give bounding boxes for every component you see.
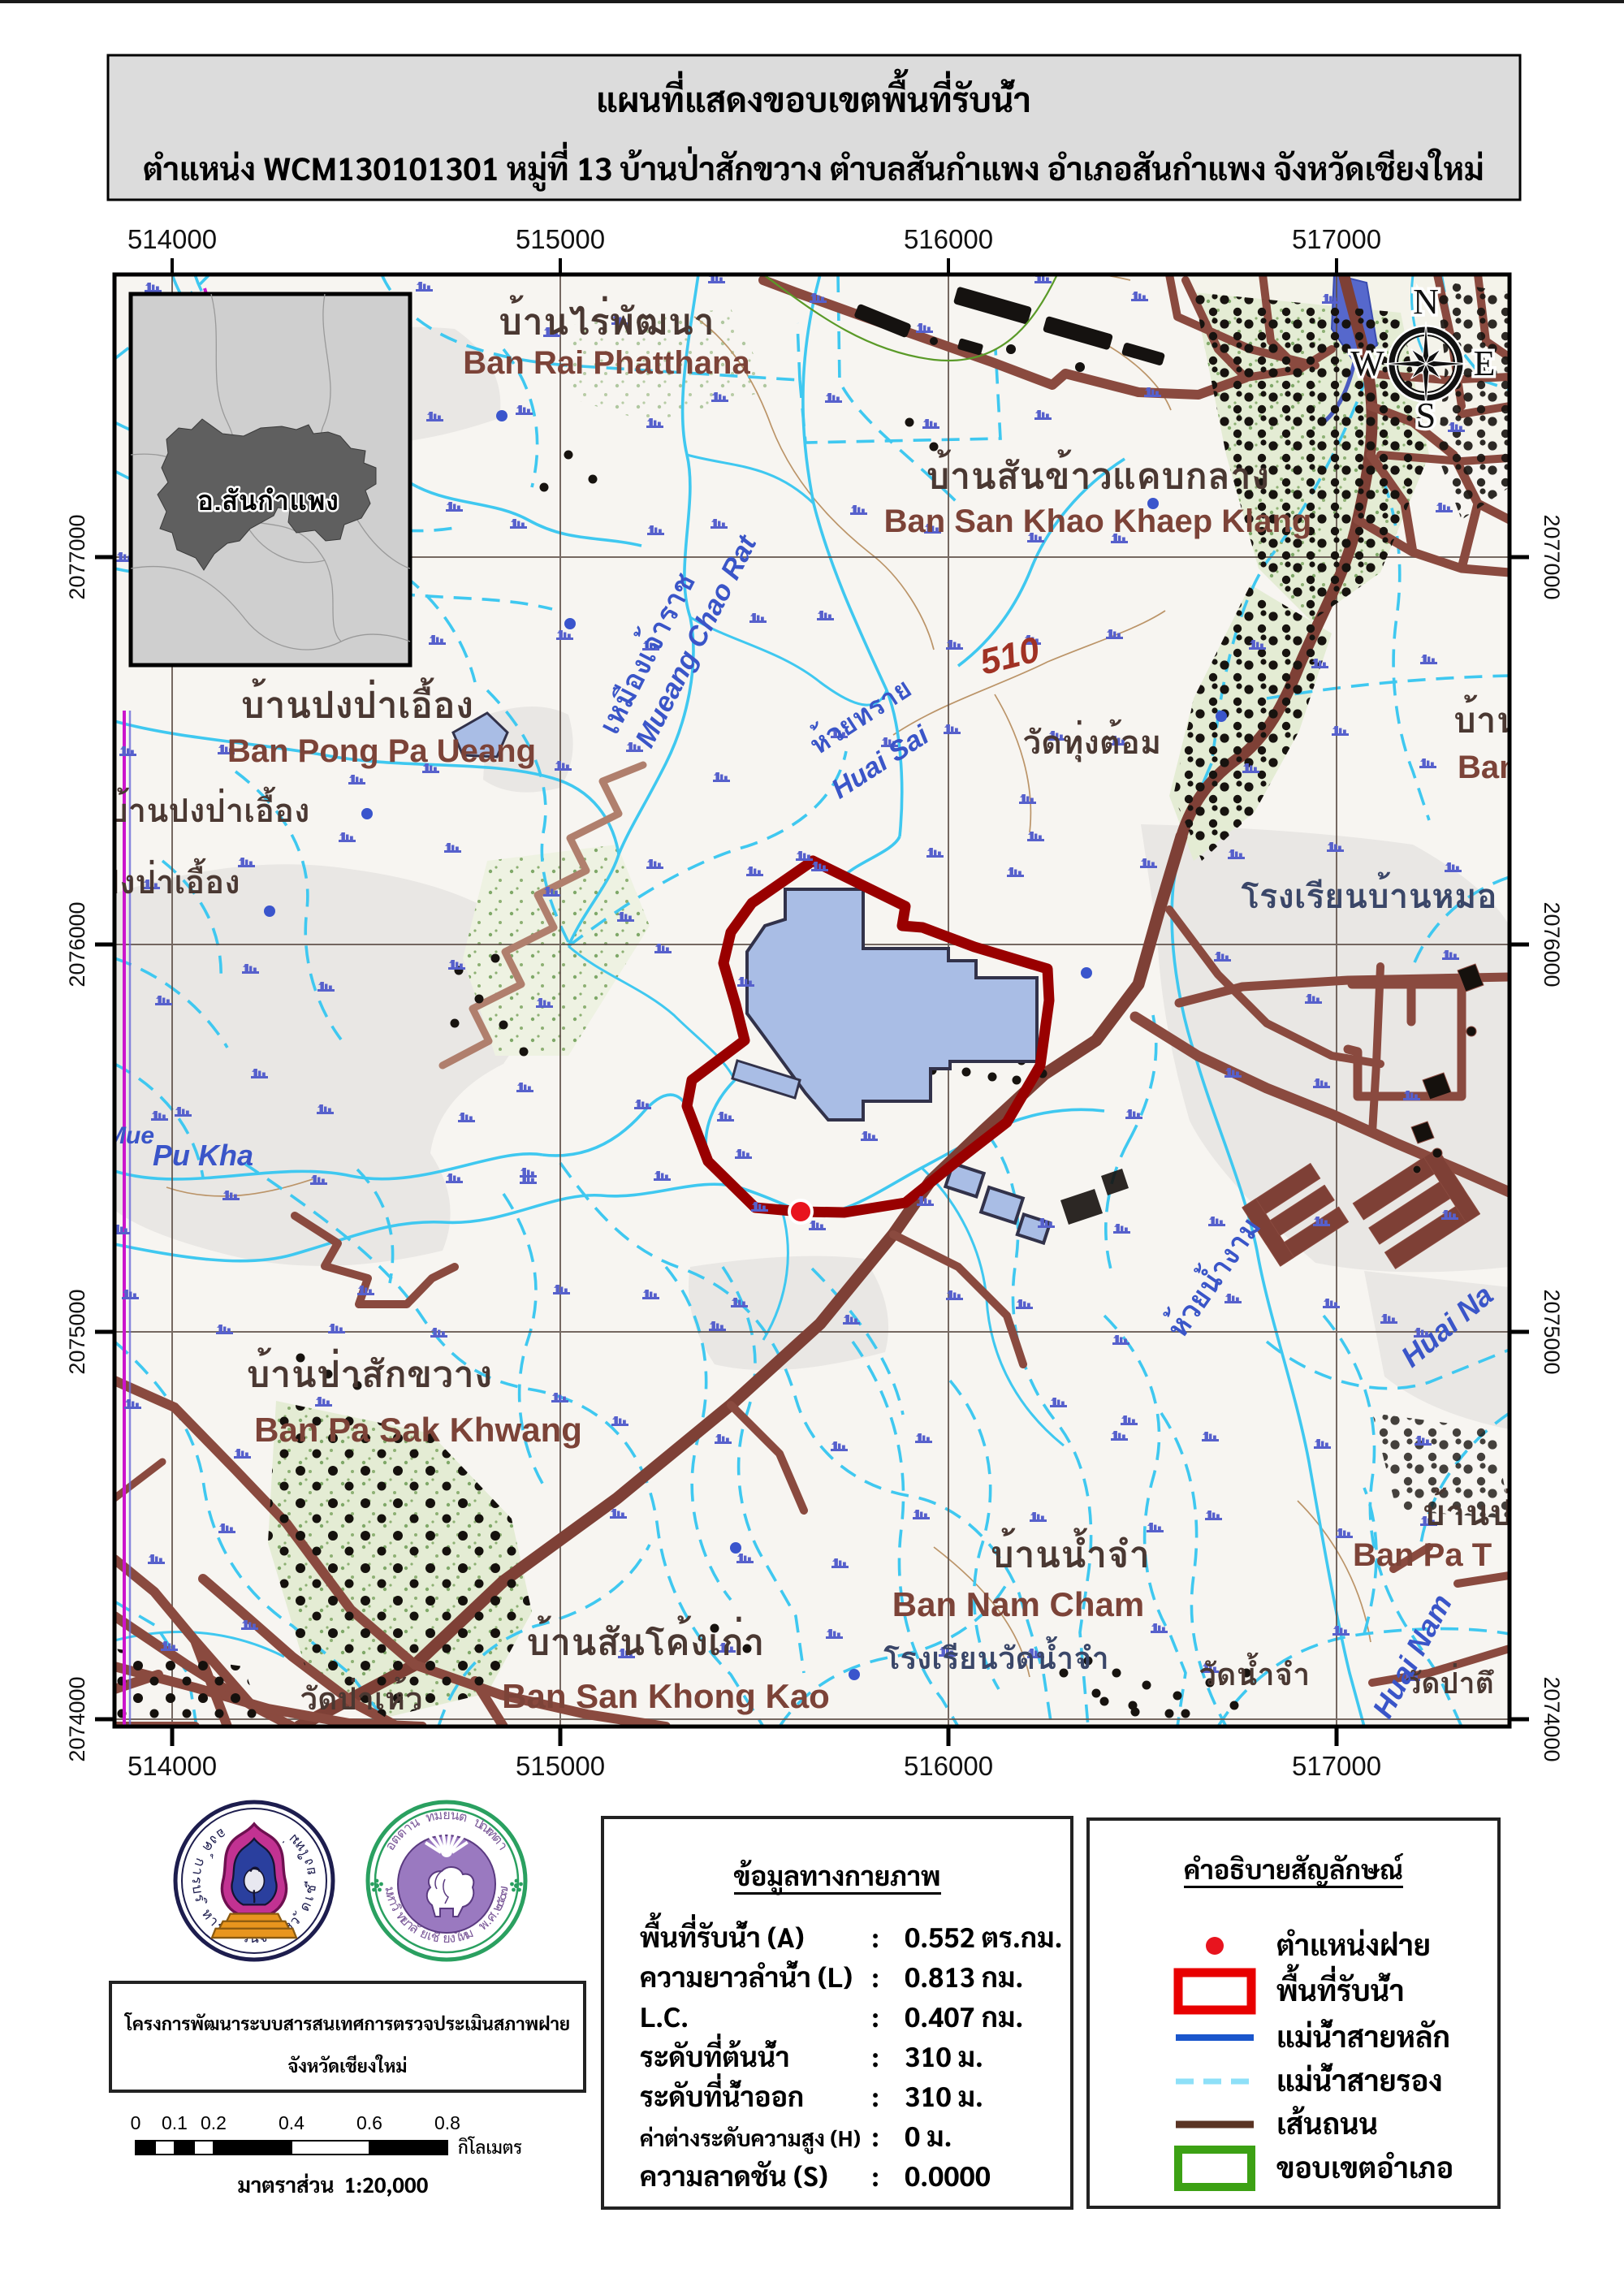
svg-text:0.1: 0.1: [162, 2112, 188, 2133]
svg-text:W: W: [1350, 344, 1384, 383]
svg-text:N: N: [1413, 282, 1439, 322]
svg-text:2077000: 2077000: [1540, 514, 1564, 599]
svg-text:2077000: 2077000: [65, 514, 89, 599]
svg-text:517000: 517000: [1292, 224, 1381, 254]
svg-text:Ban Pong Pa Ueang: Ban Pong Pa Ueang: [227, 733, 536, 769]
svg-text:514000: 514000: [127, 1751, 217, 1781]
svg-text:0.2: 0.2: [201, 2112, 227, 2133]
svg-text:Pu Kha: Pu Kha: [153, 1139, 253, 1172]
svg-text:Ban Rai Phatthana: Ban Rai Phatthana: [463, 345, 750, 381]
svg-text:0.8: 0.8: [434, 2112, 460, 2133]
svg-text:515000: 515000: [516, 1751, 605, 1781]
svg-text:Ban M: Ban M: [1458, 750, 1555, 785]
svg-text:2074000: 2074000: [1540, 1676, 1564, 1761]
svg-text:516000: 516000: [904, 224, 993, 254]
svg-text:516000: 516000: [904, 1751, 993, 1781]
svg-text:515000: 515000: [516, 224, 605, 254]
svg-text:2076000: 2076000: [65, 901, 89, 987]
svg-text:E: E: [1474, 344, 1496, 383]
svg-text:Ban Pa T: Ban Pa T: [1353, 1537, 1492, 1573]
svg-text:2074000: 2074000: [65, 1676, 89, 1761]
svg-text:Ban San Khao Khaep Klang: Ban San Khao Khaep Klang: [884, 504, 1312, 539]
svg-text:S: S: [1416, 395, 1436, 435]
svg-text:514000: 514000: [127, 224, 217, 254]
svg-text:0: 0: [131, 2112, 141, 2133]
svg-text:517000: 517000: [1292, 1751, 1381, 1781]
svg-text:Ban Pa Sak Khwang: Ban Pa Sak Khwang: [254, 1411, 582, 1449]
svg-text:2075000: 2075000: [1540, 1289, 1564, 1374]
svg-text:0.4: 0.4: [279, 2112, 304, 2133]
svg-text:2076000: 2076000: [1540, 901, 1564, 987]
svg-text:Ban Nam Cham: Ban Nam Cham: [892, 1585, 1144, 1623]
svg-text:Ban San Khong Kao: Ban San Khong Kao: [502, 1677, 830, 1715]
svg-text:0.6: 0.6: [356, 2112, 382, 2133]
svg-text:2075000: 2075000: [65, 1289, 89, 1374]
